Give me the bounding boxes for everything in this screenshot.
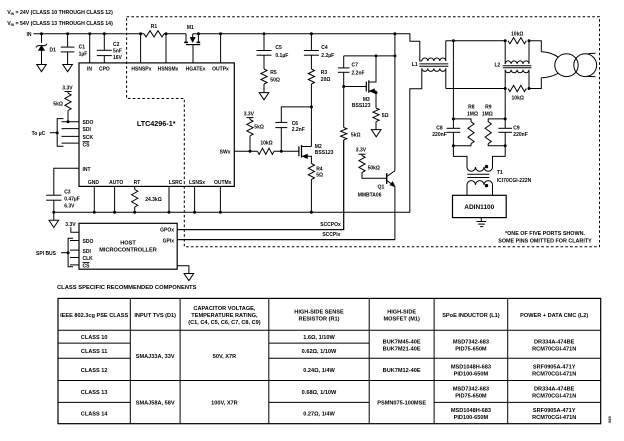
svg-text:0.1µF: 0.1µF xyxy=(275,53,288,59)
svg-text:3.3V: 3.3V xyxy=(244,111,255,117)
svg-text:RCM70CGI-471N: RCM70CGI-471N xyxy=(532,346,576,352)
svg-text:220nF: 220nF xyxy=(513,132,527,138)
svg-text:5kΩ: 5kΩ xyxy=(53,102,63,108)
svg-text:PID100-650M: PID100-650M xyxy=(454,415,489,421)
svg-text:C5: C5 xyxy=(275,45,282,51)
svg-text:3.3V: 3.3V xyxy=(356,148,367,154)
svg-text:BUK7M21-40E: BUK7M21-40E xyxy=(383,346,421,352)
svg-text:SDI: SDI xyxy=(83,249,92,255)
svg-text:16V: 16V xyxy=(113,55,123,61)
svg-text:SCCPOx: SCCPOx xyxy=(320,222,341,228)
svg-text:ADIN1100: ADIN1100 xyxy=(464,204,494,211)
svg-text:R1: R1 xyxy=(151,24,158,30)
svg-text:0.27Ω, 1/4W: 0.27Ω, 1/4W xyxy=(303,412,335,418)
svg-text:5Ω: 5Ω xyxy=(316,172,323,178)
svg-text:GPOx: GPOx xyxy=(160,228,174,234)
svg-text:CLK: CLK xyxy=(83,256,94,262)
svg-text:0.47µF: 0.47µF xyxy=(64,196,80,202)
svg-text:PID75-650M: PID75-650M xyxy=(455,346,487,352)
svg-text:CLASS SPECIFIC RECOMMENDED COM: CLASS SPECIFIC RECOMMENDED COMPONENTS xyxy=(57,285,197,291)
svg-text:MSD7342-683: MSD7342-683 xyxy=(453,386,489,392)
svg-text:MMBTA06: MMBTA06 xyxy=(358,192,382,198)
svg-text:1.6Ω, 1/10W: 1.6Ω, 1/10W xyxy=(303,335,335,341)
svg-text:50Ω: 50Ω xyxy=(270,77,280,83)
svg-text:CLASS 14: CLASS 14 xyxy=(81,412,109,418)
svg-text:SMAJ58A, 58V: SMAJ58A, 58V xyxy=(136,401,175,407)
svg-text:D1: D1 xyxy=(50,48,57,54)
svg-text:HOST: HOST xyxy=(120,240,136,246)
svg-text:24.3kΩ: 24.3kΩ xyxy=(145,197,162,203)
svg-text:DR334A-474BE: DR334A-474BE xyxy=(534,386,575,392)
svg-text:T1: T1 xyxy=(497,170,503,176)
svg-text:CS: CS xyxy=(83,264,91,270)
svg-text:CLASS 10: CLASS 10 xyxy=(81,335,108,341)
svg-text:10kΩ: 10kΩ xyxy=(511,31,523,37)
svg-text:RESISTOR (R1): RESISTOR (R1) xyxy=(299,316,340,322)
svg-text:DR334A-474BE: DR334A-474BE xyxy=(534,339,575,345)
svg-text:VIN = 24V (CLASS 10 THROUGH CL: VIN = 24V (CLASS 10 THROUGH CLASS 12) xyxy=(7,10,113,16)
svg-text:R9: R9 xyxy=(485,105,492,111)
svg-text:2.2µF: 2.2µF xyxy=(321,53,334,59)
svg-text:SPoE INDUCTOR (L1): SPoE INDUCTOR (L1) xyxy=(442,313,500,319)
svg-text:BUK7M12-40E: BUK7M12-40E xyxy=(383,368,421,374)
svg-text:PID75-650M: PID75-650M xyxy=(455,393,487,399)
svg-text:6.3V: 6.3V xyxy=(64,203,75,209)
svg-text:CPO: CPO xyxy=(99,66,110,72)
svg-text:2.2nF: 2.2nF xyxy=(352,70,365,76)
svg-text:RCM70CGI-471N: RCM70CGI-471N xyxy=(532,393,576,399)
svg-text:M3: M3 xyxy=(363,97,370,103)
svg-text:C8: C8 xyxy=(436,125,443,131)
svg-text:SDI: SDI xyxy=(83,127,92,133)
svg-text:R5: R5 xyxy=(270,70,277,76)
svg-text:L1: L1 xyxy=(412,62,418,68)
svg-text:RCM70CGI-471N: RCM70CGI-471N xyxy=(532,371,576,377)
svg-text:085: 085 xyxy=(607,416,612,423)
svg-text:3.3V: 3.3V xyxy=(65,222,76,228)
svg-text:C9: C9 xyxy=(513,125,520,131)
svg-text:M1: M1 xyxy=(187,25,194,31)
svg-text:5Ω: 5Ω xyxy=(382,113,389,119)
svg-text:5kΩ: 5kΩ xyxy=(254,125,264,131)
svg-text:5nF: 5nF xyxy=(113,48,122,54)
svg-text:L2: L2 xyxy=(495,62,501,68)
svg-text:PID100-650M: PID100-650M xyxy=(454,371,489,377)
svg-text:BSS123: BSS123 xyxy=(352,103,371,109)
svg-text:HSNSPx: HSNSPx xyxy=(131,66,151,72)
svg-text:50V, X7R: 50V, X7R xyxy=(213,354,236,360)
svg-text:IN: IN xyxy=(27,32,32,38)
svg-text:R3: R3 xyxy=(321,70,328,76)
svg-text:OUTMx: OUTMx xyxy=(214,180,232,186)
svg-text:CLASS 11: CLASS 11 xyxy=(81,349,107,355)
svg-text:0.24Ω, 1/4W: 0.24Ω, 1/4W xyxy=(303,368,335,374)
svg-text:C7: C7 xyxy=(352,63,359,69)
svg-text:SRF0905A-471Y: SRF0905A-471Y xyxy=(533,408,576,414)
svg-text:LTC4296-1*: LTC4296-1* xyxy=(137,119,176,128)
svg-text:GND: GND xyxy=(88,180,100,186)
svg-text:VIN = 54V (CLASS 13 THROUGH CL: VIN = 54V (CLASS 13 THROUGH CLASS 14) xyxy=(7,21,113,27)
svg-text:HIGH-SIDE SENSE: HIGH-SIDE SENSE xyxy=(294,309,344,315)
svg-text:Q1: Q1 xyxy=(378,185,385,191)
svg-text:BUK7M45-40E: BUK7M45-40E xyxy=(383,339,421,345)
svg-text:CS: CS xyxy=(83,143,91,149)
svg-text:IEEE 802.3cg PSE CLASS: IEEE 802.3cg PSE CLASS xyxy=(60,313,128,319)
svg-text:MOSFET (M1): MOSFET (M1) xyxy=(383,316,419,322)
svg-text:RT: RT xyxy=(134,180,141,186)
svg-text:100V, X7R: 100V, X7R xyxy=(211,401,238,407)
svg-text:TEMPERATURE RATING,: TEMPERATURE RATING, xyxy=(191,313,258,319)
svg-text:(C1, C4, C5, C6, C7, C8, C9): (C1, C4, C5, C6, C7, C8, C9) xyxy=(188,320,261,326)
svg-text:10kΩ: 10kΩ xyxy=(260,140,272,146)
svg-text:MSD1048H-683: MSD1048H-683 xyxy=(451,408,491,414)
svg-text:SDO: SDO xyxy=(83,239,94,245)
svg-text:5kΩ: 5kΩ xyxy=(351,132,361,138)
svg-text:C3: C3 xyxy=(64,189,71,195)
svg-text:PSMN075-100MSE: PSMN075-100MSE xyxy=(377,401,426,407)
svg-text:INPUT TVS (D1): INPUT TVS (D1) xyxy=(134,313,176,319)
svg-text:C6: C6 xyxy=(292,121,299,127)
svg-text:SMAJ33A, 33V: SMAJ33A, 33V xyxy=(136,354,175,360)
svg-text:1MΩ: 1MΩ xyxy=(467,111,478,117)
svg-text:*ONE OF FIVE PORTS SHOWN.: *ONE OF FIVE PORTS SHOWN. xyxy=(505,231,585,237)
svg-text:IN: IN xyxy=(87,66,92,72)
svg-text:To µC: To µC xyxy=(32,131,46,137)
svg-text:C4: C4 xyxy=(321,45,328,51)
svg-text:1MΩ: 1MΩ xyxy=(482,111,493,117)
svg-text:SPI BUS: SPI BUS xyxy=(36,251,57,257)
svg-text:R8: R8 xyxy=(468,105,475,111)
svg-text:20Ω: 20Ω xyxy=(321,77,331,83)
svg-text:C1: C1 xyxy=(79,45,86,51)
svg-text:SDO: SDO xyxy=(83,120,94,126)
svg-text:MICROCONTROLLER: MICROCONTROLLER xyxy=(99,248,157,254)
svg-text:MSD7342-683: MSD7342-683 xyxy=(453,339,489,345)
svg-text:3.3V: 3.3V xyxy=(62,85,73,91)
svg-text:BSS123: BSS123 xyxy=(315,150,334,156)
svg-text:CLASS 12: CLASS 12 xyxy=(81,368,108,374)
svg-text:MSD1048H-683: MSD1048H-683 xyxy=(451,364,491,370)
svg-text:GPIx: GPIx xyxy=(163,238,175,244)
svg-text:2.2nF: 2.2nF xyxy=(292,127,305,133)
svg-text:CLASS 13: CLASS 13 xyxy=(81,390,108,396)
svg-text:SCK: SCK xyxy=(83,135,94,141)
svg-text:220nF: 220nF xyxy=(432,132,446,138)
svg-text:POWER + DATA CMC (L2): POWER + DATA CMC (L2) xyxy=(520,313,588,319)
svg-text:HGATEx: HGATEx xyxy=(186,66,206,72)
svg-text:SRF0905A-471Y: SRF0905A-471Y xyxy=(533,364,576,370)
svg-text:CAPACITOR VOLTAGE,: CAPACITOR VOLTAGE, xyxy=(193,306,255,312)
svg-text:RCM70CGI-471N: RCM70CGI-471N xyxy=(532,415,576,421)
svg-text:LSRC: LSRC xyxy=(169,180,183,186)
svg-text:50kΩ: 50kΩ xyxy=(368,165,380,171)
svg-text:0.68Ω, 1/10W: 0.68Ω, 1/10W xyxy=(302,390,337,396)
svg-text:ICI70CGI-222N: ICI70CGI-222N xyxy=(497,178,532,184)
svg-text:10kΩ: 10kΩ xyxy=(512,95,524,101)
svg-text:0.62Ω, 1/10W: 0.62Ω, 1/10W xyxy=(302,349,337,355)
svg-text:1µF: 1µF xyxy=(79,51,88,57)
svg-text:SOME PINS OMITTED FOR CLARITY: SOME PINS OMITTED FOR CLARITY xyxy=(498,238,592,244)
svg-text:SWx: SWx xyxy=(220,150,231,156)
svg-text:OUTPx: OUTPx xyxy=(212,66,229,72)
svg-text:LSNSx: LSNSx xyxy=(189,180,205,186)
svg-text:HSNSMx: HSNSMx xyxy=(158,66,179,72)
svg-text:AUTO: AUTO xyxy=(109,180,123,186)
svg-text:C2: C2 xyxy=(113,42,120,48)
svg-text:SCCPIx: SCCPIx xyxy=(322,232,340,238)
svg-text:INT: INT xyxy=(83,167,91,173)
svg-text:HIGH-SIDE: HIGH-SIDE xyxy=(387,309,416,315)
